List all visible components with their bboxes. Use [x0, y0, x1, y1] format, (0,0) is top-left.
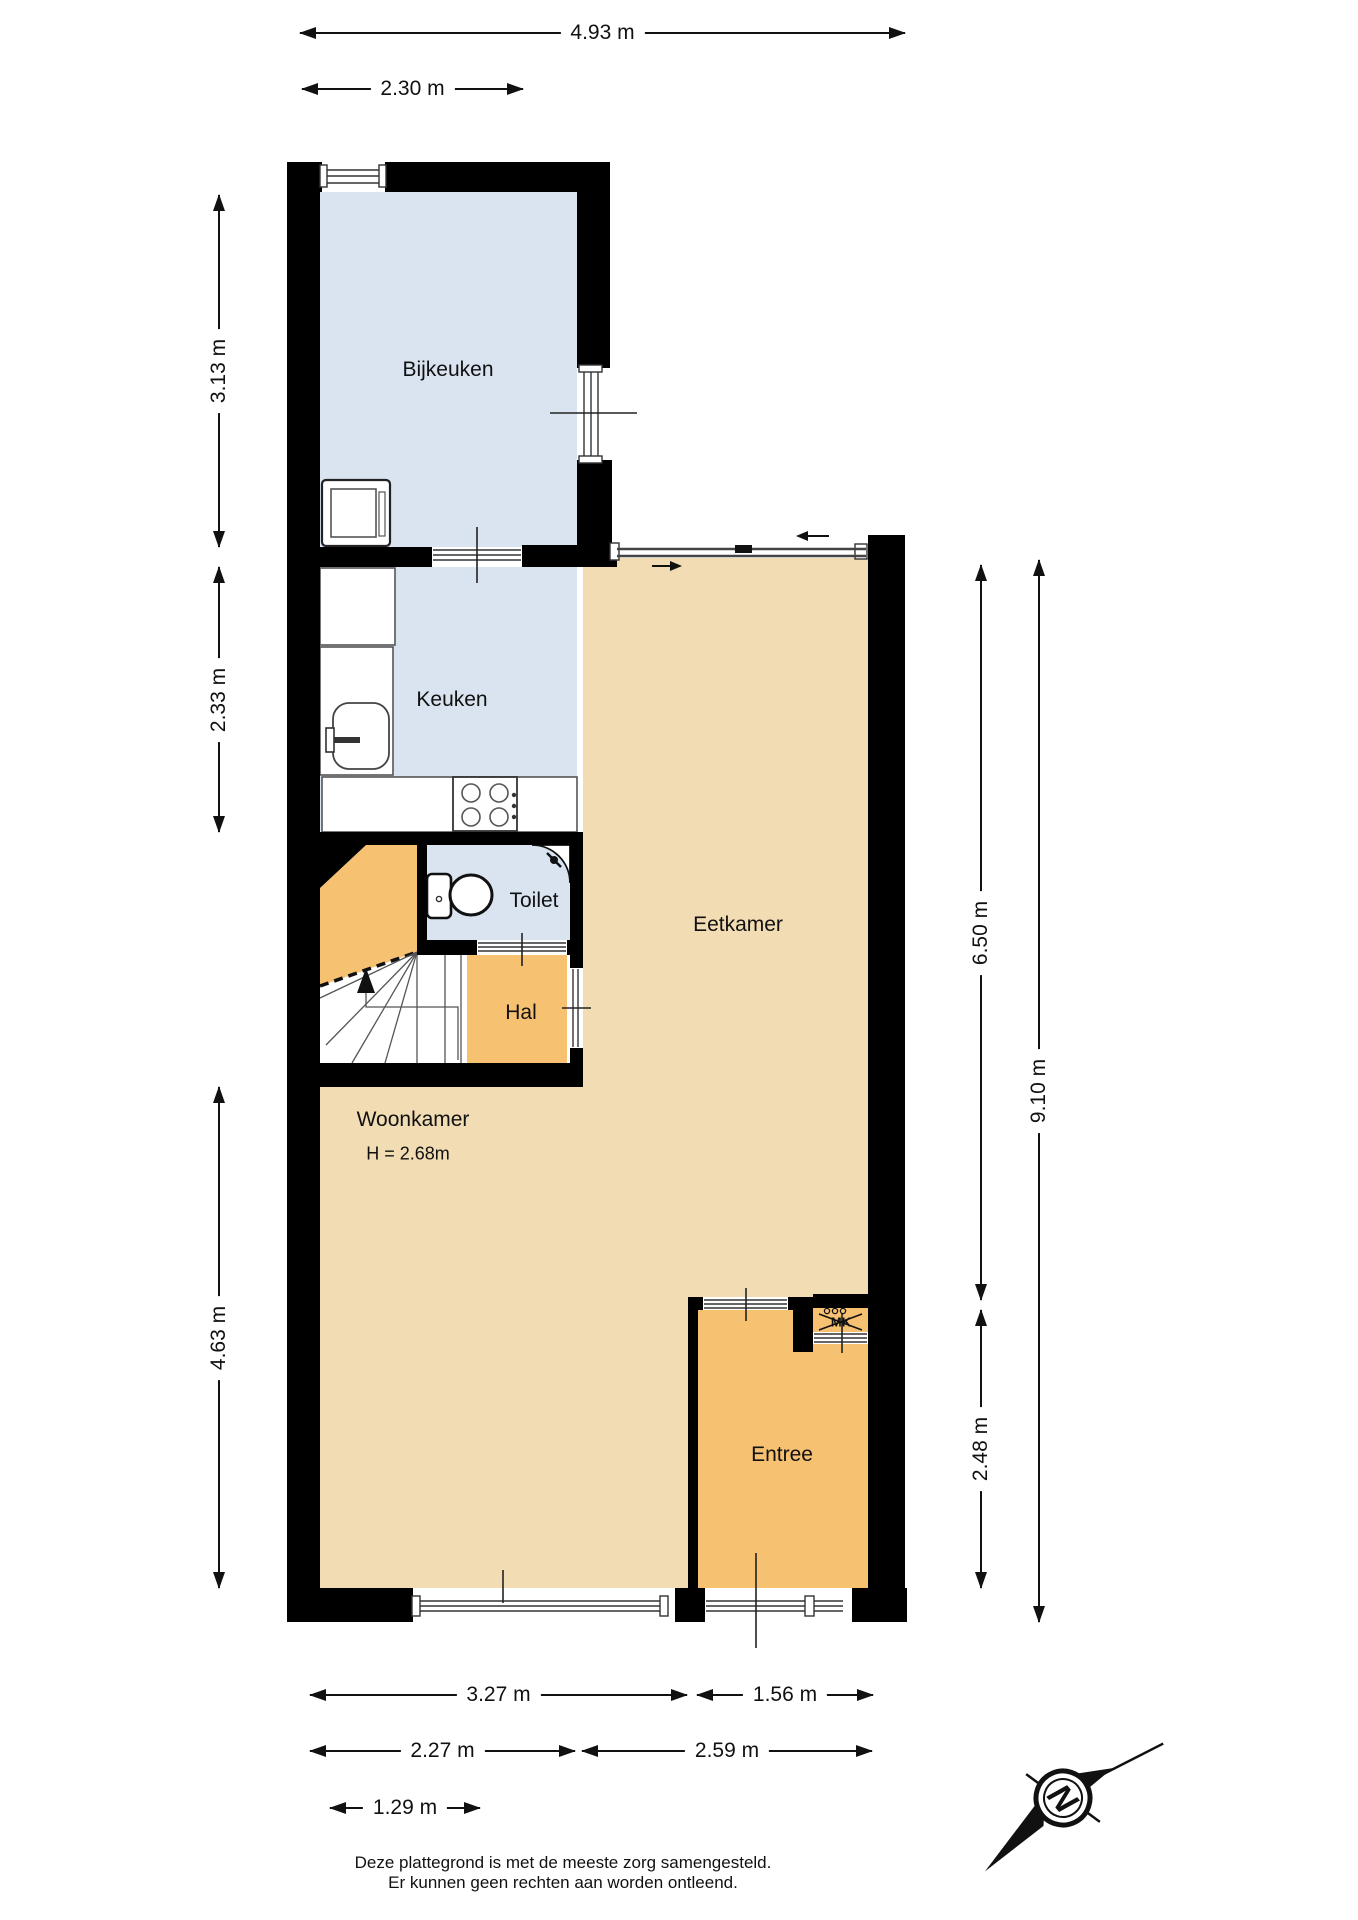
room-label-entree: Entree — [751, 1443, 813, 1467]
room-label-toilet: Toilet — [509, 889, 558, 913]
dimension-right-eetkamer: 6.50 m — [980, 565, 982, 1300]
room-label-meterkast: MK — [831, 1315, 851, 1330]
dimension-bottom-keuken: 2.27 m — [310, 1750, 575, 1752]
dimension-left-bijkeuken: 3.13 m — [218, 195, 220, 547]
dimension-left-woonkamer: 4.63 m — [218, 1087, 220, 1588]
room-note-ceiling-height: H = 2.68m — [366, 1144, 450, 1165]
glazing-layer — [0, 0, 1358, 1920]
dimension-top-bijkeuken: 2.30 m — [302, 88, 523, 90]
dimension-right-overall: 9.10 m — [1038, 560, 1040, 1622]
sliding-door — [617, 531, 866, 571]
disclaimer-line-1: Deze plattegrond is met de meeste zorg s… — [233, 1853, 893, 1873]
floorplan-page: N — [0, 0, 1358, 1920]
dimension-bottom-stairs: 1.29 m — [330, 1807, 480, 1809]
room-label-woonkamer: Woonkamer — [357, 1108, 470, 1132]
disclaimer: Deze plattegrond is met de meeste zorg s… — [233, 1853, 893, 1893]
room-label-eetkamer: Eetkamer — [693, 913, 783, 937]
room-label-hal: Hal — [505, 1001, 537, 1025]
dimension-right-entree: 2.48 m — [980, 1310, 982, 1588]
room-label-keuken: Keuken — [416, 688, 487, 712]
disclaimer-line-2: Er kunnen geen rechten aan worden ontlee… — [233, 1873, 893, 1893]
dimension-bottom-entree: 1.56 m — [697, 1694, 873, 1696]
dimension-bottom-eetkamer: 2.59 m — [582, 1750, 872, 1752]
dimension-bottom-woonkamer: 3.27 m — [310, 1694, 687, 1696]
dimension-top-overall: 4.93 m — [300, 32, 905, 34]
dimension-left-keuken: 2.33 m — [218, 567, 220, 832]
room-label-bijkeuken: Bijkeuken — [402, 358, 493, 382]
